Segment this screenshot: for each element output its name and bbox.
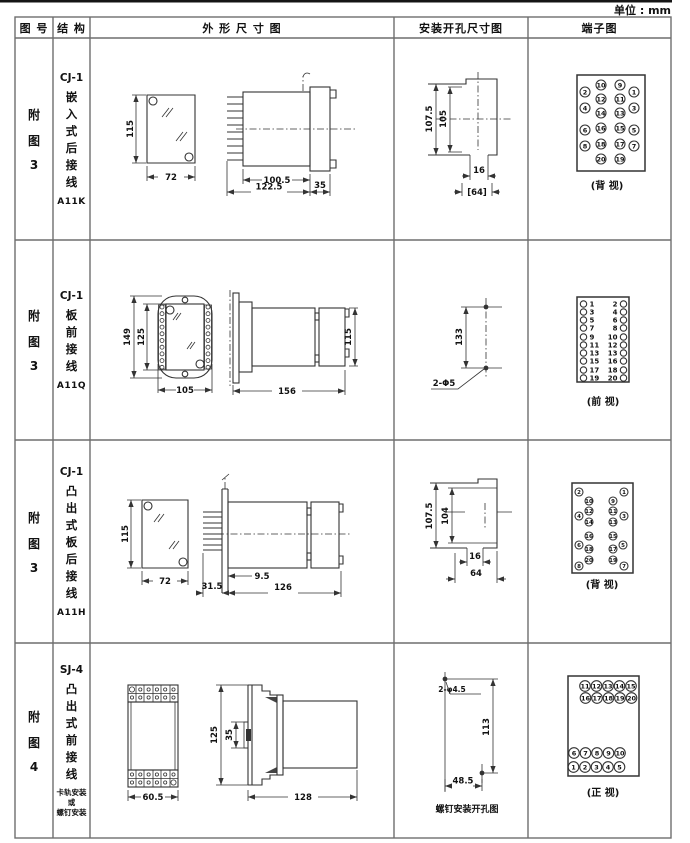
svg-text:15: 15 — [615, 124, 625, 132]
svg-text:19: 19 — [615, 155, 625, 163]
hatch-mark — [154, 514, 179, 549]
svg-text:3: 3 — [594, 763, 599, 771]
svg-text:2: 2 — [613, 301, 618, 309]
svg-text:6: 6 — [613, 317, 618, 325]
svg-text:13: 13 — [603, 682, 612, 690]
svg-text:1: 1 — [622, 490, 626, 496]
svg-text:5: 5 — [617, 763, 622, 771]
svg-text:35: 35 — [225, 729, 235, 741]
row2-mounting-drawing: 133 2-Φ5 — [431, 298, 502, 389]
svg-text:113: 113 — [482, 718, 492, 736]
svg-text:17: 17 — [609, 547, 617, 553]
svg-text:8: 8 — [595, 749, 600, 757]
svg-text:156: 156 — [278, 387, 296, 397]
svg-text:16: 16 — [473, 166, 485, 176]
mount-hole — [484, 366, 489, 371]
svg-text:18: 18 — [596, 140, 606, 148]
svg-text:17: 17 — [592, 694, 601, 702]
rail-section-mark — [246, 729, 251, 741]
svg-text:18: 18 — [604, 694, 614, 702]
svg-text:10: 10 — [608, 334, 618, 342]
svg-text:5: 5 — [621, 543, 625, 549]
svg-text:19: 19 — [590, 375, 600, 383]
svg-text:128: 128 — [294, 793, 312, 803]
svg-text:13: 13 — [609, 520, 617, 526]
terminal-pin-grid: 1112131415161718192067891012345 — [568, 681, 637, 773]
svg-text:13: 13 — [615, 109, 624, 117]
svg-text:5: 5 — [590, 317, 595, 325]
svg-text:13: 13 — [590, 350, 600, 358]
svg-text:7: 7 — [583, 749, 588, 757]
svg-text:2: 2 — [583, 88, 588, 96]
row4-outline-front: 60.5 — [128, 685, 178, 803]
view-caption: (背 视) — [586, 578, 619, 591]
svg-text:[64]: [64] — [467, 188, 487, 198]
svg-text:115: 115 — [344, 328, 354, 346]
svg-text:105: 105 — [176, 386, 194, 396]
svg-text:13: 13 — [608, 350, 618, 358]
svg-text:48.5: 48.5 — [453, 777, 474, 787]
terminal-strip — [160, 305, 210, 369]
svg-text:14: 14 — [596, 109, 606, 117]
svg-text:6: 6 — [572, 749, 577, 757]
svg-text:105: 105 — [439, 110, 449, 128]
svg-text:104: 104 — [441, 507, 451, 525]
svg-text:10: 10 — [615, 749, 625, 757]
hole-spec-label: 2-Φ5 — [433, 379, 456, 389]
hole-spec-label: 2-φ4.5 — [438, 685, 465, 694]
svg-text:2: 2 — [577, 490, 581, 496]
row2-outline-front: 149 125 105 — [123, 296, 212, 396]
svg-text:16: 16 — [581, 694, 591, 702]
row3-outline-front: 115 72 — [121, 500, 188, 587]
svg-text:20: 20 — [608, 375, 618, 383]
svg-text:11: 11 — [609, 509, 617, 515]
row3-mounting-drawing: 107.5 104 16 64 — [425, 479, 512, 583]
svg-text:12: 12 — [592, 682, 601, 690]
svg-text:11: 11 — [615, 95, 625, 103]
row1-outline-side: 100.5 122.5 35 — [227, 73, 356, 196]
row4-terminal-diagram: 1112131415161718192067891012345 (正 视) — [568, 676, 639, 799]
svg-text:1: 1 — [590, 301, 595, 309]
svg-text:3: 3 — [590, 309, 595, 317]
svg-text:15: 15 — [590, 358, 600, 366]
datasheet-page: 单位 : mm 图 号 结 构 外 形 尺 寸 图 安装开孔尺寸图 端子图 附图… — [0, 0, 690, 843]
svg-text:64: 64 — [470, 569, 482, 579]
svg-text:72: 72 — [159, 577, 171, 587]
svg-text:16: 16 — [585, 534, 593, 540]
svg-text:149: 149 — [123, 328, 133, 346]
svg-text:18: 18 — [585, 547, 593, 553]
svg-text:1: 1 — [571, 763, 576, 771]
svg-text:4: 4 — [577, 514, 581, 520]
svg-text:7: 7 — [590, 325, 595, 333]
svg-text:6: 6 — [577, 543, 581, 549]
svg-text:125: 125 — [210, 726, 220, 744]
row2-outline-side: 115 156 — [230, 290, 358, 397]
svg-text:133: 133 — [455, 328, 465, 346]
svg-text:20: 20 — [596, 155, 606, 163]
svg-text:9: 9 — [590, 334, 595, 342]
svg-text:17: 17 — [615, 140, 624, 148]
view-caption: (前 视) — [587, 395, 620, 408]
svg-text:18: 18 — [608, 367, 618, 375]
mount-caption: 螺钉安装开孔图 — [435, 803, 498, 815]
row1-outline-front: 115 72 — [126, 95, 195, 183]
svg-text:5: 5 — [632, 126, 637, 134]
svg-text:20: 20 — [585, 558, 593, 564]
svg-text:14: 14 — [585, 520, 593, 526]
view-caption: (背 视) — [591, 179, 624, 192]
table-grid — [0, 0, 672, 838]
svg-text:2: 2 — [583, 763, 588, 771]
terminal-pin-grid: 2110912114314131615651817201987 — [575, 488, 628, 570]
svg-text:107.5: 107.5 — [425, 105, 435, 132]
svg-text:1: 1 — [632, 88, 637, 96]
svg-text:15: 15 — [626, 682, 636, 690]
row1-terminal-diagram: 1092112114314131615651817872019 (背 视) — [577, 75, 645, 192]
svg-text:3: 3 — [632, 104, 637, 112]
view-caption: (正 视) — [587, 786, 620, 799]
weld-triangle — [265, 697, 277, 703]
svg-text:115: 115 — [121, 525, 131, 543]
svg-text:20: 20 — [627, 694, 637, 702]
svg-text:6: 6 — [583, 126, 588, 134]
svg-text:16: 16 — [469, 552, 481, 562]
row1-mounting-drawing: 107.5 105 16 [64] — [425, 72, 512, 198]
svg-text:14: 14 — [615, 682, 625, 690]
mount-hole — [484, 305, 489, 310]
row4-mounting-drawing: 2-φ4.5 113 48.5 螺钉安装开孔图 — [435, 672, 498, 815]
svg-text:15: 15 — [609, 534, 617, 540]
terminal-pin-grid: 1234567891011121313151617181920 — [580, 301, 626, 383]
svg-text:60.5: 60.5 — [143, 793, 164, 803]
svg-text:115: 115 — [126, 120, 136, 138]
svg-text:8: 8 — [583, 142, 588, 150]
svg-text:19: 19 — [609, 558, 617, 564]
svg-text:10: 10 — [585, 499, 593, 505]
row3-terminal-diagram: 2110912114314131615651817201987 (背 视) — [572, 483, 633, 591]
svg-text:16: 16 — [608, 358, 618, 366]
svg-text:8: 8 — [577, 564, 581, 570]
hatch-mark — [162, 108, 187, 141]
svg-text:125: 125 — [137, 328, 147, 346]
svg-text:126: 126 — [274, 583, 292, 593]
svg-text:35: 35 — [314, 181, 326, 191]
svg-text:11: 11 — [590, 342, 600, 350]
svg-text:107.5: 107.5 — [425, 502, 435, 529]
svg-text:12: 12 — [585, 509, 593, 515]
svg-text:12: 12 — [596, 95, 605, 103]
svg-text:72: 72 — [165, 173, 177, 183]
svg-text:16: 16 — [596, 124, 606, 132]
row4-outline-side: 125 35 128 — [210, 685, 357, 803]
weld-triangle — [265, 767, 277, 773]
svg-text:4: 4 — [613, 309, 618, 317]
svg-text:9: 9 — [611, 499, 615, 505]
terminal-pins — [227, 97, 243, 160]
svg-text:122.5: 122.5 — [256, 183, 283, 193]
row3-outline-side: 9.5 31.5 126 — [196, 474, 350, 597]
svg-text:9: 9 — [618, 81, 623, 89]
row2-terminal-diagram: 1234567891011121313151617181920 (前 视) — [577, 297, 629, 408]
svg-text:7: 7 — [632, 142, 637, 150]
hatch-mark — [173, 313, 195, 349]
svg-text:17: 17 — [590, 367, 600, 375]
svg-text:31.5: 31.5 — [202, 582, 223, 592]
svg-text:19: 19 — [615, 694, 625, 702]
svg-text:9.5: 9.5 — [254, 572, 269, 582]
diagram-svg: 115 72 100.5 122.5 35 107.5 — [0, 0, 690, 843]
svg-text:8: 8 — [613, 325, 618, 333]
terminal-pins — [203, 512, 222, 550]
svg-text:11: 11 — [580, 682, 590, 690]
terminal-pin-grid: 1092112114314131615651817872019 — [580, 80, 639, 164]
svg-text:4: 4 — [606, 763, 611, 771]
svg-text:10: 10 — [596, 81, 606, 89]
svg-text:9: 9 — [606, 749, 611, 757]
svg-text:4: 4 — [583, 104, 588, 112]
svg-text:12: 12 — [608, 342, 618, 350]
svg-text:3: 3 — [622, 514, 626, 520]
svg-text:7: 7 — [622, 564, 626, 570]
